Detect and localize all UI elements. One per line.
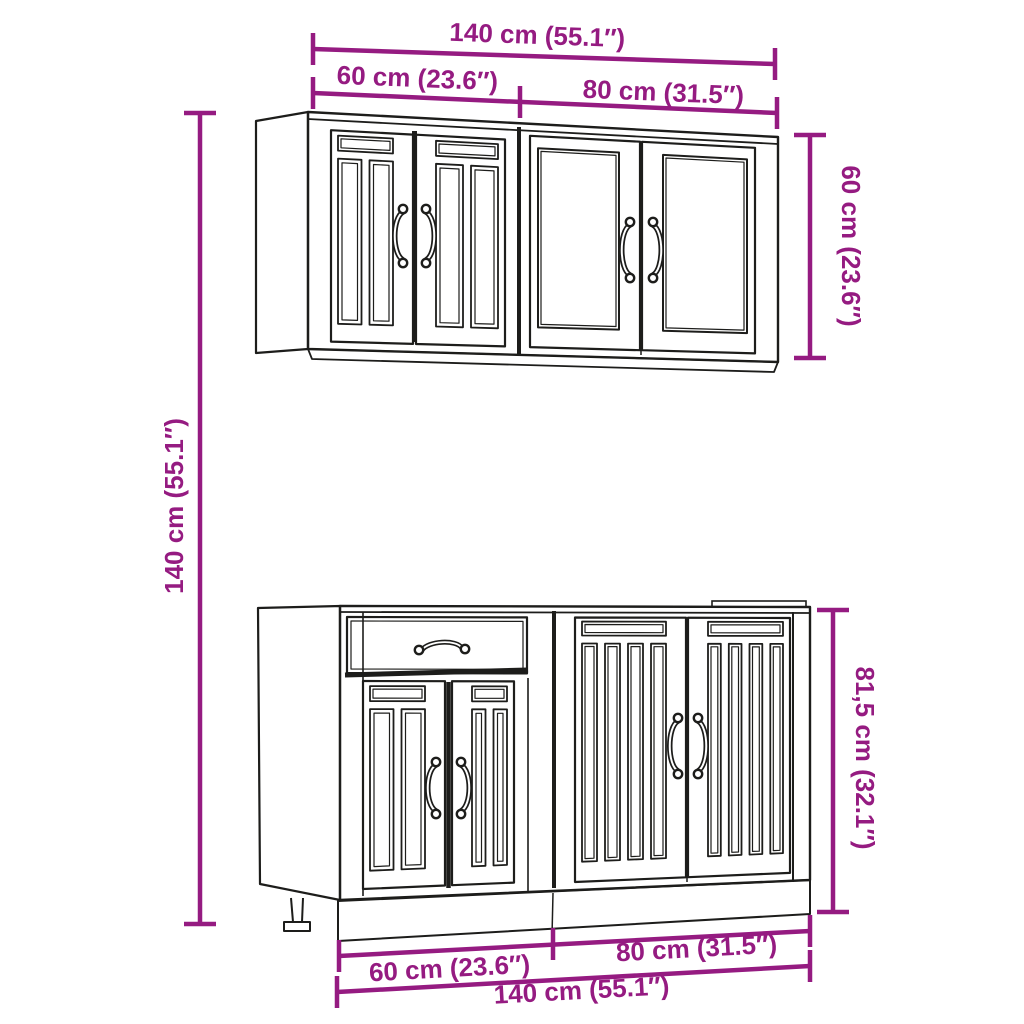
handle-screw xyxy=(415,646,423,654)
base-80-door-right-top-panel xyxy=(708,622,783,636)
base-80-door-left-slat-3 xyxy=(628,644,643,860)
handle-bow xyxy=(622,225,630,275)
wall-80-door-left-panel xyxy=(538,148,619,329)
wall-60-door-right-left-panel-inner xyxy=(440,168,459,323)
front-leg-left-edge xyxy=(291,898,293,922)
handle-screw xyxy=(674,714,682,722)
handle-screw xyxy=(694,714,702,722)
handle-screw xyxy=(399,205,407,213)
wall-cabinet-drawing xyxy=(256,112,778,372)
base-80-door-right-slat-1 xyxy=(708,644,721,857)
handle-screw xyxy=(457,758,465,766)
handle-screw xyxy=(422,205,430,213)
base-60-door-left-right-panel-inner xyxy=(406,713,422,865)
dim-right-upper-label: 60 cm (23.6″) xyxy=(836,165,866,326)
wall-60-door-right xyxy=(416,135,505,347)
wall-60-door-right-top-panel-inner xyxy=(439,144,495,156)
wall-80-door-right-panel-inner xyxy=(666,158,744,330)
base-60-door-right-right-panel xyxy=(494,709,508,865)
base-80-door-right-slat-2 xyxy=(729,644,742,856)
base-80-door-left-slat-4-inner xyxy=(654,647,663,856)
dim-right-lower xyxy=(817,610,849,912)
door-handle xyxy=(670,714,682,778)
base-60-door-left-outline xyxy=(363,681,445,889)
base-60-door-right xyxy=(452,681,514,885)
base-cabinet-drawing xyxy=(258,601,810,941)
base-80-door-left-top-panel-inner xyxy=(585,625,663,633)
wall-60-door-left-top-panel xyxy=(338,136,393,154)
base-80-door-right xyxy=(688,618,790,878)
base-80-door-left-slat-3-inner xyxy=(631,647,640,857)
handle-screw xyxy=(674,770,682,778)
base-60-door-right-top-panel xyxy=(472,686,507,701)
door-handle xyxy=(622,218,634,282)
handle-screw xyxy=(649,274,657,282)
handle-bow xyxy=(395,212,403,260)
dim-right-lower-label: 81,5 cm (32.1″) xyxy=(850,666,880,849)
base-cabinet-top-band xyxy=(340,612,810,613)
door-handle xyxy=(428,758,440,818)
base-80-door-right-slat-2-inner xyxy=(732,647,739,853)
base-60-door-right-right-panel-inner xyxy=(498,713,504,861)
diagram-canvas: 140 cm (55.1″) 60 cm (23.6″) 80 cm (31.5… xyxy=(0,0,1024,1024)
dim-bottom-right-segment-label: 80 cm (31.5″) xyxy=(615,929,778,968)
base-60-door-right-left-panel xyxy=(472,709,486,866)
base-60-door-left-top-panel xyxy=(370,686,425,701)
wall-60-door-left-outline xyxy=(331,130,413,344)
wall-60-door-left-top-panel-inner xyxy=(341,139,390,151)
door-handle xyxy=(457,758,469,818)
base-60-drawer xyxy=(347,617,527,673)
handle-screw xyxy=(457,810,465,818)
door-handle xyxy=(649,218,661,282)
base-60-door-left xyxy=(363,681,445,889)
dim-left-label: 140 cm (55.1″) xyxy=(159,418,189,594)
handle-bow xyxy=(461,765,469,811)
door-handle xyxy=(694,714,706,778)
base-80-door-right-slat-1-inner xyxy=(711,647,718,853)
base-60-door-right-outline xyxy=(452,681,514,885)
handle-screw xyxy=(626,274,634,282)
wall-80-door-left-panel-inner xyxy=(541,151,616,326)
drawer-handle xyxy=(415,642,469,654)
base-80-door-left-slat-2-inner xyxy=(608,647,617,858)
handle-screw xyxy=(422,259,430,267)
handle-bow xyxy=(428,765,436,811)
handle-screw xyxy=(694,770,702,778)
base-60-door-left-left-panel-inner xyxy=(374,713,390,867)
base-80-door-left-slat-2 xyxy=(605,644,620,861)
cabinet-dimension-diagram: 140 cm (55.1″) 60 cm (23.6″) 80 cm (31.5… xyxy=(0,0,1024,1024)
base-80-door-left-slat-4 xyxy=(651,644,666,859)
base-cabinet-side-panel xyxy=(258,606,340,900)
dim-top-total-label: 140 cm (55.1″) xyxy=(449,17,626,53)
base-80-door-right-slat-3 xyxy=(750,644,763,855)
wall-cabinet-side-panel xyxy=(256,112,308,353)
wall-60-door-left-right-panel-inner xyxy=(374,165,390,322)
handle-bow xyxy=(670,721,678,771)
base-80-door-right-slat-3-inner xyxy=(753,647,760,852)
front-leg-right-edge xyxy=(302,898,303,922)
base-80-door-left-top-panel xyxy=(582,622,666,636)
base-80-door-right-slat-4-inner xyxy=(773,647,780,851)
handle-screw xyxy=(432,758,440,766)
front-leg-foot xyxy=(284,922,310,931)
base-80-door-right-slat-4 xyxy=(770,644,783,854)
wall-60-door-right-right-panel-inner xyxy=(475,170,494,324)
wall-60-door-left-left-panel-inner xyxy=(342,163,358,321)
handle-screw xyxy=(461,645,469,653)
wall-60-door-right-top-panel xyxy=(436,141,498,159)
base-80-door-right-top-panel-inner xyxy=(711,625,780,633)
handle-screw xyxy=(626,218,634,226)
handle-screw xyxy=(649,218,657,226)
base-60-door-right-top-panel-inner xyxy=(475,689,504,698)
wall-60-door-left xyxy=(331,130,413,344)
handle-bow xyxy=(426,212,434,260)
handle-bow xyxy=(653,225,661,275)
door-handle xyxy=(422,205,434,267)
base-80-door-left-slat-1-inner xyxy=(585,647,594,859)
base-80-door-left-slat-1 xyxy=(582,644,597,862)
dimension-lines xyxy=(184,33,849,1008)
dim-top-left-segment-label: 60 cm (23.6″) xyxy=(336,60,498,96)
handle-screw xyxy=(432,810,440,818)
base-60-door-right-left-panel-inner xyxy=(476,713,482,862)
dim-right-upper xyxy=(794,135,826,358)
handle-bow xyxy=(698,721,706,771)
door-handle xyxy=(395,205,407,267)
base-60-door-left-top-panel-inner xyxy=(373,689,422,698)
wall-80-door-right-panel xyxy=(663,155,747,333)
cabinet-line-art xyxy=(256,112,810,941)
handle-screw xyxy=(399,259,407,267)
